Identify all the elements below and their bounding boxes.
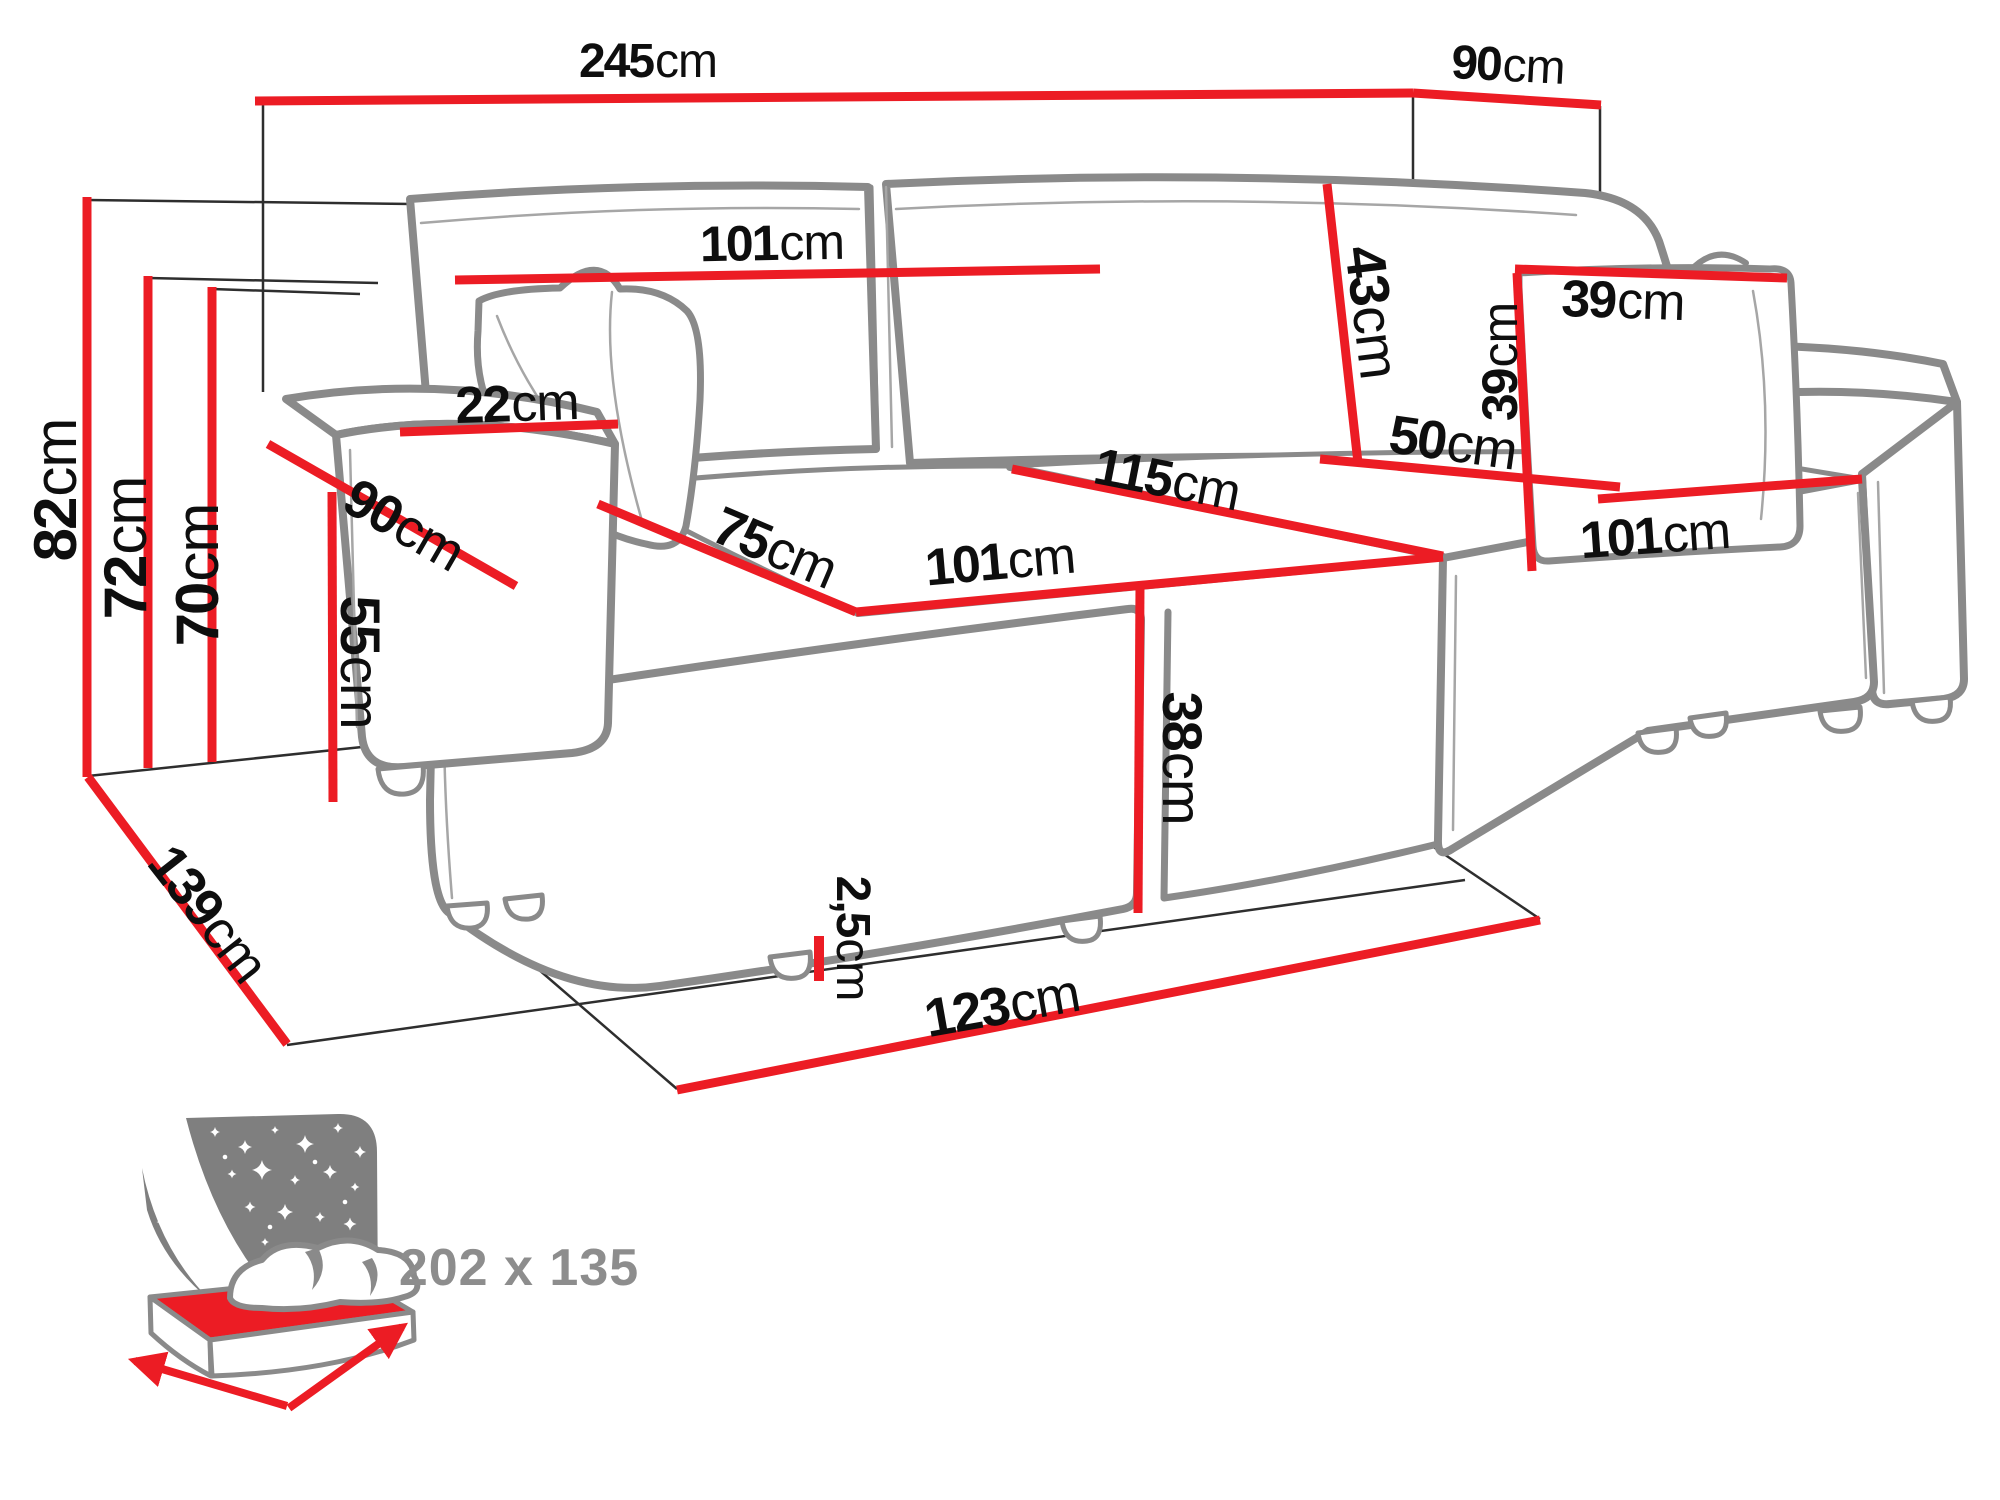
dim-label-backrest-width: 101cm xyxy=(700,217,845,270)
dim-label-leg-height: 2,5cm xyxy=(828,876,876,1001)
dim-label-pillow-height: 39cm xyxy=(1475,303,1525,421)
sofa-foot xyxy=(1062,916,1100,941)
dim-label-backrest-height: 72cm xyxy=(96,477,156,620)
sofa-foot xyxy=(1820,707,1860,731)
sofa-foot xyxy=(1638,728,1676,752)
sofa-foot xyxy=(770,952,810,978)
sofa-dimension-drawing xyxy=(0,0,2000,1500)
dimension-line-seat-front-height xyxy=(1138,586,1140,913)
bed-icon xyxy=(135,1114,417,1408)
dimension-line-total-width xyxy=(255,93,1413,101)
dim-label-total-depth-right: 90cm xyxy=(1450,39,1566,93)
projection-line xyxy=(87,200,412,204)
dim-label-total-width: 245cm xyxy=(579,38,717,86)
sofa-foot xyxy=(505,895,542,919)
dim-label-total-height: 82cm xyxy=(26,419,86,562)
dim-label-seat-front-height: 38cm xyxy=(1154,692,1210,825)
dim-label-back-cushion-top-height: 70cm xyxy=(168,504,228,647)
projection-line xyxy=(88,747,362,776)
bed-sleeping-area-label: 202 x 135 xyxy=(399,1242,639,1294)
dim-label-armrest-top-width: 22cm xyxy=(455,376,580,432)
dim-label-chaise-side-length: 101cm xyxy=(1578,505,1731,567)
sofa-foot xyxy=(1690,713,1727,736)
sofa-foot xyxy=(447,903,487,928)
armrest-right-front xyxy=(1862,402,1964,704)
dim-label-pillow-width: 39cm xyxy=(1561,273,1686,329)
diagram-canvas: 245cm 90cm 82cm 72cm 70cm 101cm 22cm 90c… xyxy=(0,0,2000,1500)
dim-label-armrest-height: 55cm xyxy=(332,596,388,729)
sofa-foot xyxy=(1912,697,1950,721)
projection-line xyxy=(212,289,360,294)
starry-night-wedge xyxy=(142,1168,210,1300)
dim-label-back-cushion-height: 43cm xyxy=(1336,243,1408,382)
dim-label-seat-front-width: 101cm xyxy=(923,530,1077,595)
dimension-line-total-depth-right xyxy=(1413,93,1601,105)
sofa-foot xyxy=(378,765,423,794)
